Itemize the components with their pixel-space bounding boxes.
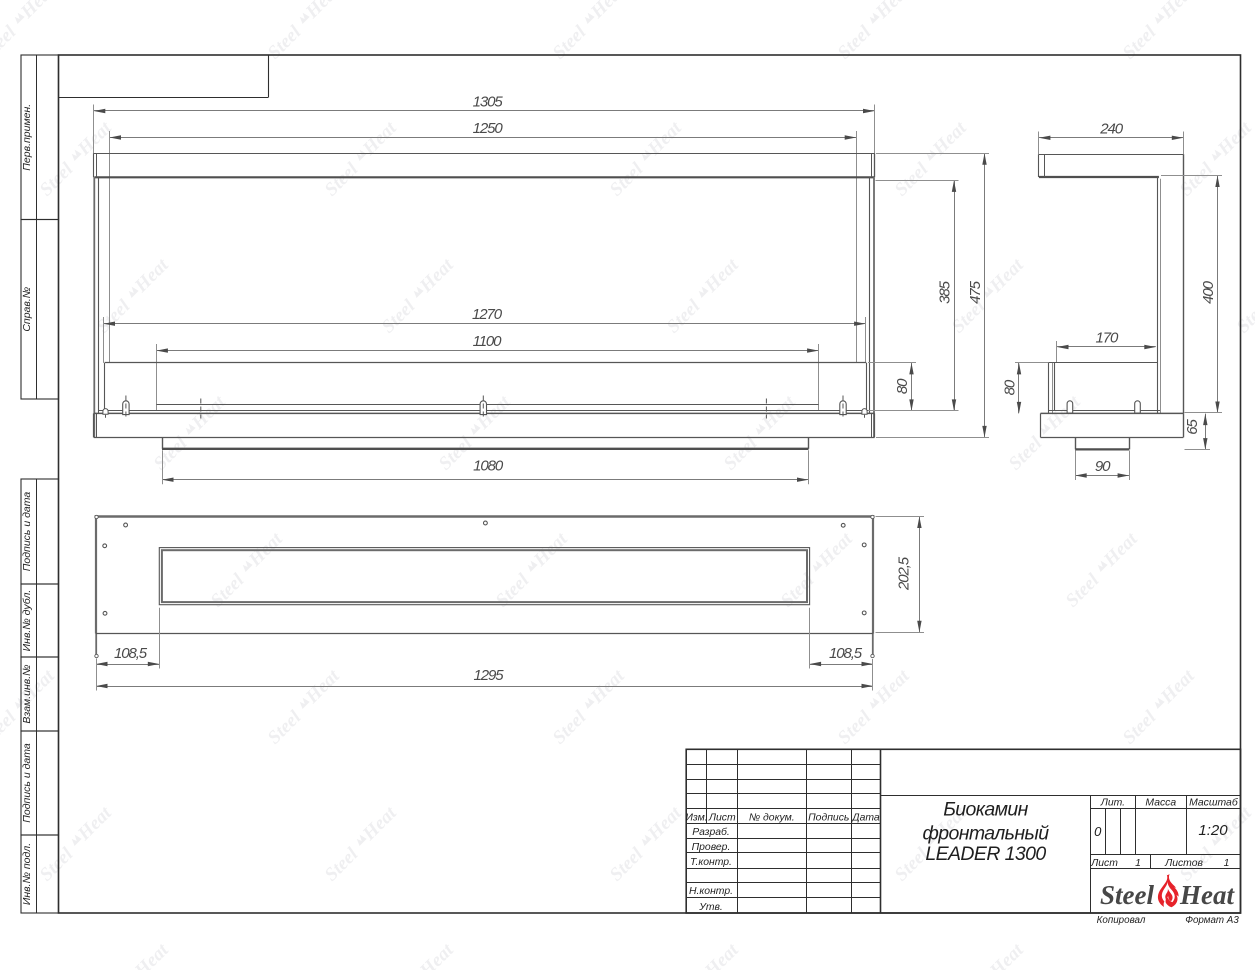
svg-text:385: 385 [937, 280, 954, 303]
svg-text:170: 170 [1096, 330, 1119, 347]
svg-text:Утв.: Утв. [698, 902, 723, 913]
svg-text:202,5: 202,5 [896, 556, 913, 591]
svg-text:Масса: Масса [1145, 798, 1176, 809]
svg-text:Инв.№ дубл.: Инв.№ дубл. [21, 590, 33, 652]
svg-text:240: 240 [1099, 120, 1123, 137]
svg-text:Перв.примен.: Перв.примен. [21, 104, 33, 171]
svg-text:1270: 1270 [472, 306, 503, 323]
svg-text:Подпись: Подпись [808, 813, 849, 824]
svg-text:Подпись и дата: Подпись и дата [21, 492, 33, 572]
svg-text:Подпись и дата: Подпись и дата [21, 743, 33, 823]
svg-text:108,5: 108,5 [829, 645, 863, 662]
svg-text:Справ.№: Справ.№ [21, 287, 33, 332]
svg-text:90: 90 [1095, 458, 1111, 475]
svg-text:1100: 1100 [473, 333, 503, 350]
svg-text:фронтальный: фронтальный [923, 823, 1050, 845]
svg-text:Лист: Лист [1090, 858, 1118, 869]
svg-text:Масштаб: Масштаб [1189, 797, 1239, 809]
svg-text:Т.контр.: Т.контр. [690, 857, 732, 868]
svg-text:0: 0 [1094, 824, 1102, 839]
svg-text:Копировал: Копировал [1097, 915, 1146, 926]
svg-text:Формат А3: Формат А3 [1185, 915, 1239, 926]
svg-text:108,5: 108,5 [114, 645, 148, 662]
svg-text:Heat: Heat [1179, 880, 1235, 910]
svg-text:Разраб.: Разраб. [692, 826, 730, 838]
svg-text:Листов: Листов [1164, 858, 1203, 869]
svg-text:№ докум.: № докум. [749, 813, 795, 824]
svg-text:1:20: 1:20 [1198, 822, 1228, 839]
svg-text:Взам.инв.№: Взам.инв.№ [21, 664, 33, 723]
svg-text:Н.контр.: Н.контр. [689, 886, 733, 897]
svg-text:Провер.: Провер. [692, 842, 731, 853]
svg-text:1: 1 [1135, 858, 1141, 869]
svg-text:Инв.№ подл.: Инв.№ подл. [21, 843, 33, 905]
svg-text:Steel: Steel [1100, 880, 1154, 910]
svg-text:80: 80 [894, 378, 911, 394]
svg-text:400: 400 [1200, 280, 1217, 303]
svg-text:Изм.: Изм. [685, 813, 707, 824]
svg-text:1305: 1305 [473, 94, 504, 111]
svg-text:1250: 1250 [473, 120, 504, 137]
svg-text:Дата: Дата [851, 813, 880, 824]
svg-text:LEADER 1300: LEADER 1300 [925, 843, 1046, 865]
svg-text:Биокамин: Биокамин [943, 799, 1028, 821]
svg-text:65: 65 [1184, 419, 1201, 435]
svg-text:Лит.: Лит. [1100, 798, 1125, 809]
svg-text:Лист: Лист [708, 813, 736, 824]
svg-text:80: 80 [1002, 379, 1019, 395]
svg-text:1: 1 [1224, 858, 1230, 869]
svg-text:475: 475 [967, 280, 984, 303]
svg-text:1295: 1295 [474, 667, 505, 684]
svg-text:1080: 1080 [473, 458, 504, 475]
